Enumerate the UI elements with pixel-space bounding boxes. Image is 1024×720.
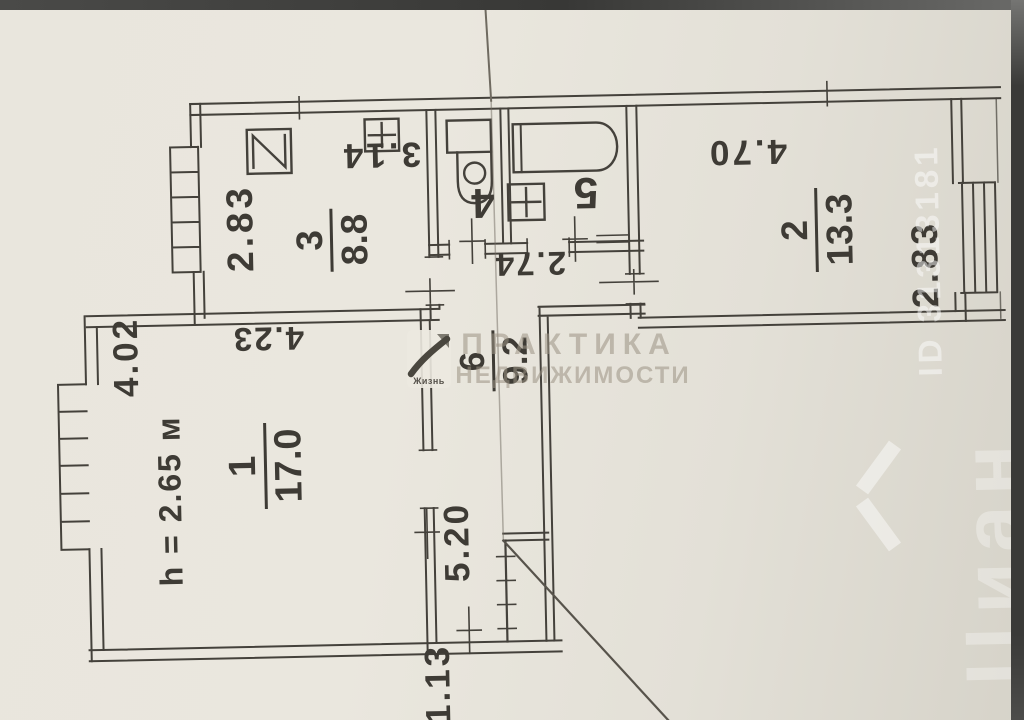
watermark-listing-id: ID 31313181	[909, 143, 947, 377]
photo-border-right	[1011, 0, 1024, 720]
portal-logo-chevron-icon	[0, 0, 1024, 720]
floor-plan-photo: 1 17.0 2 13.3 3 8.8 6 9.2 4 5 2.83 3.14 …	[0, 0, 1024, 720]
photo-border-top	[0, 0, 1024, 10]
